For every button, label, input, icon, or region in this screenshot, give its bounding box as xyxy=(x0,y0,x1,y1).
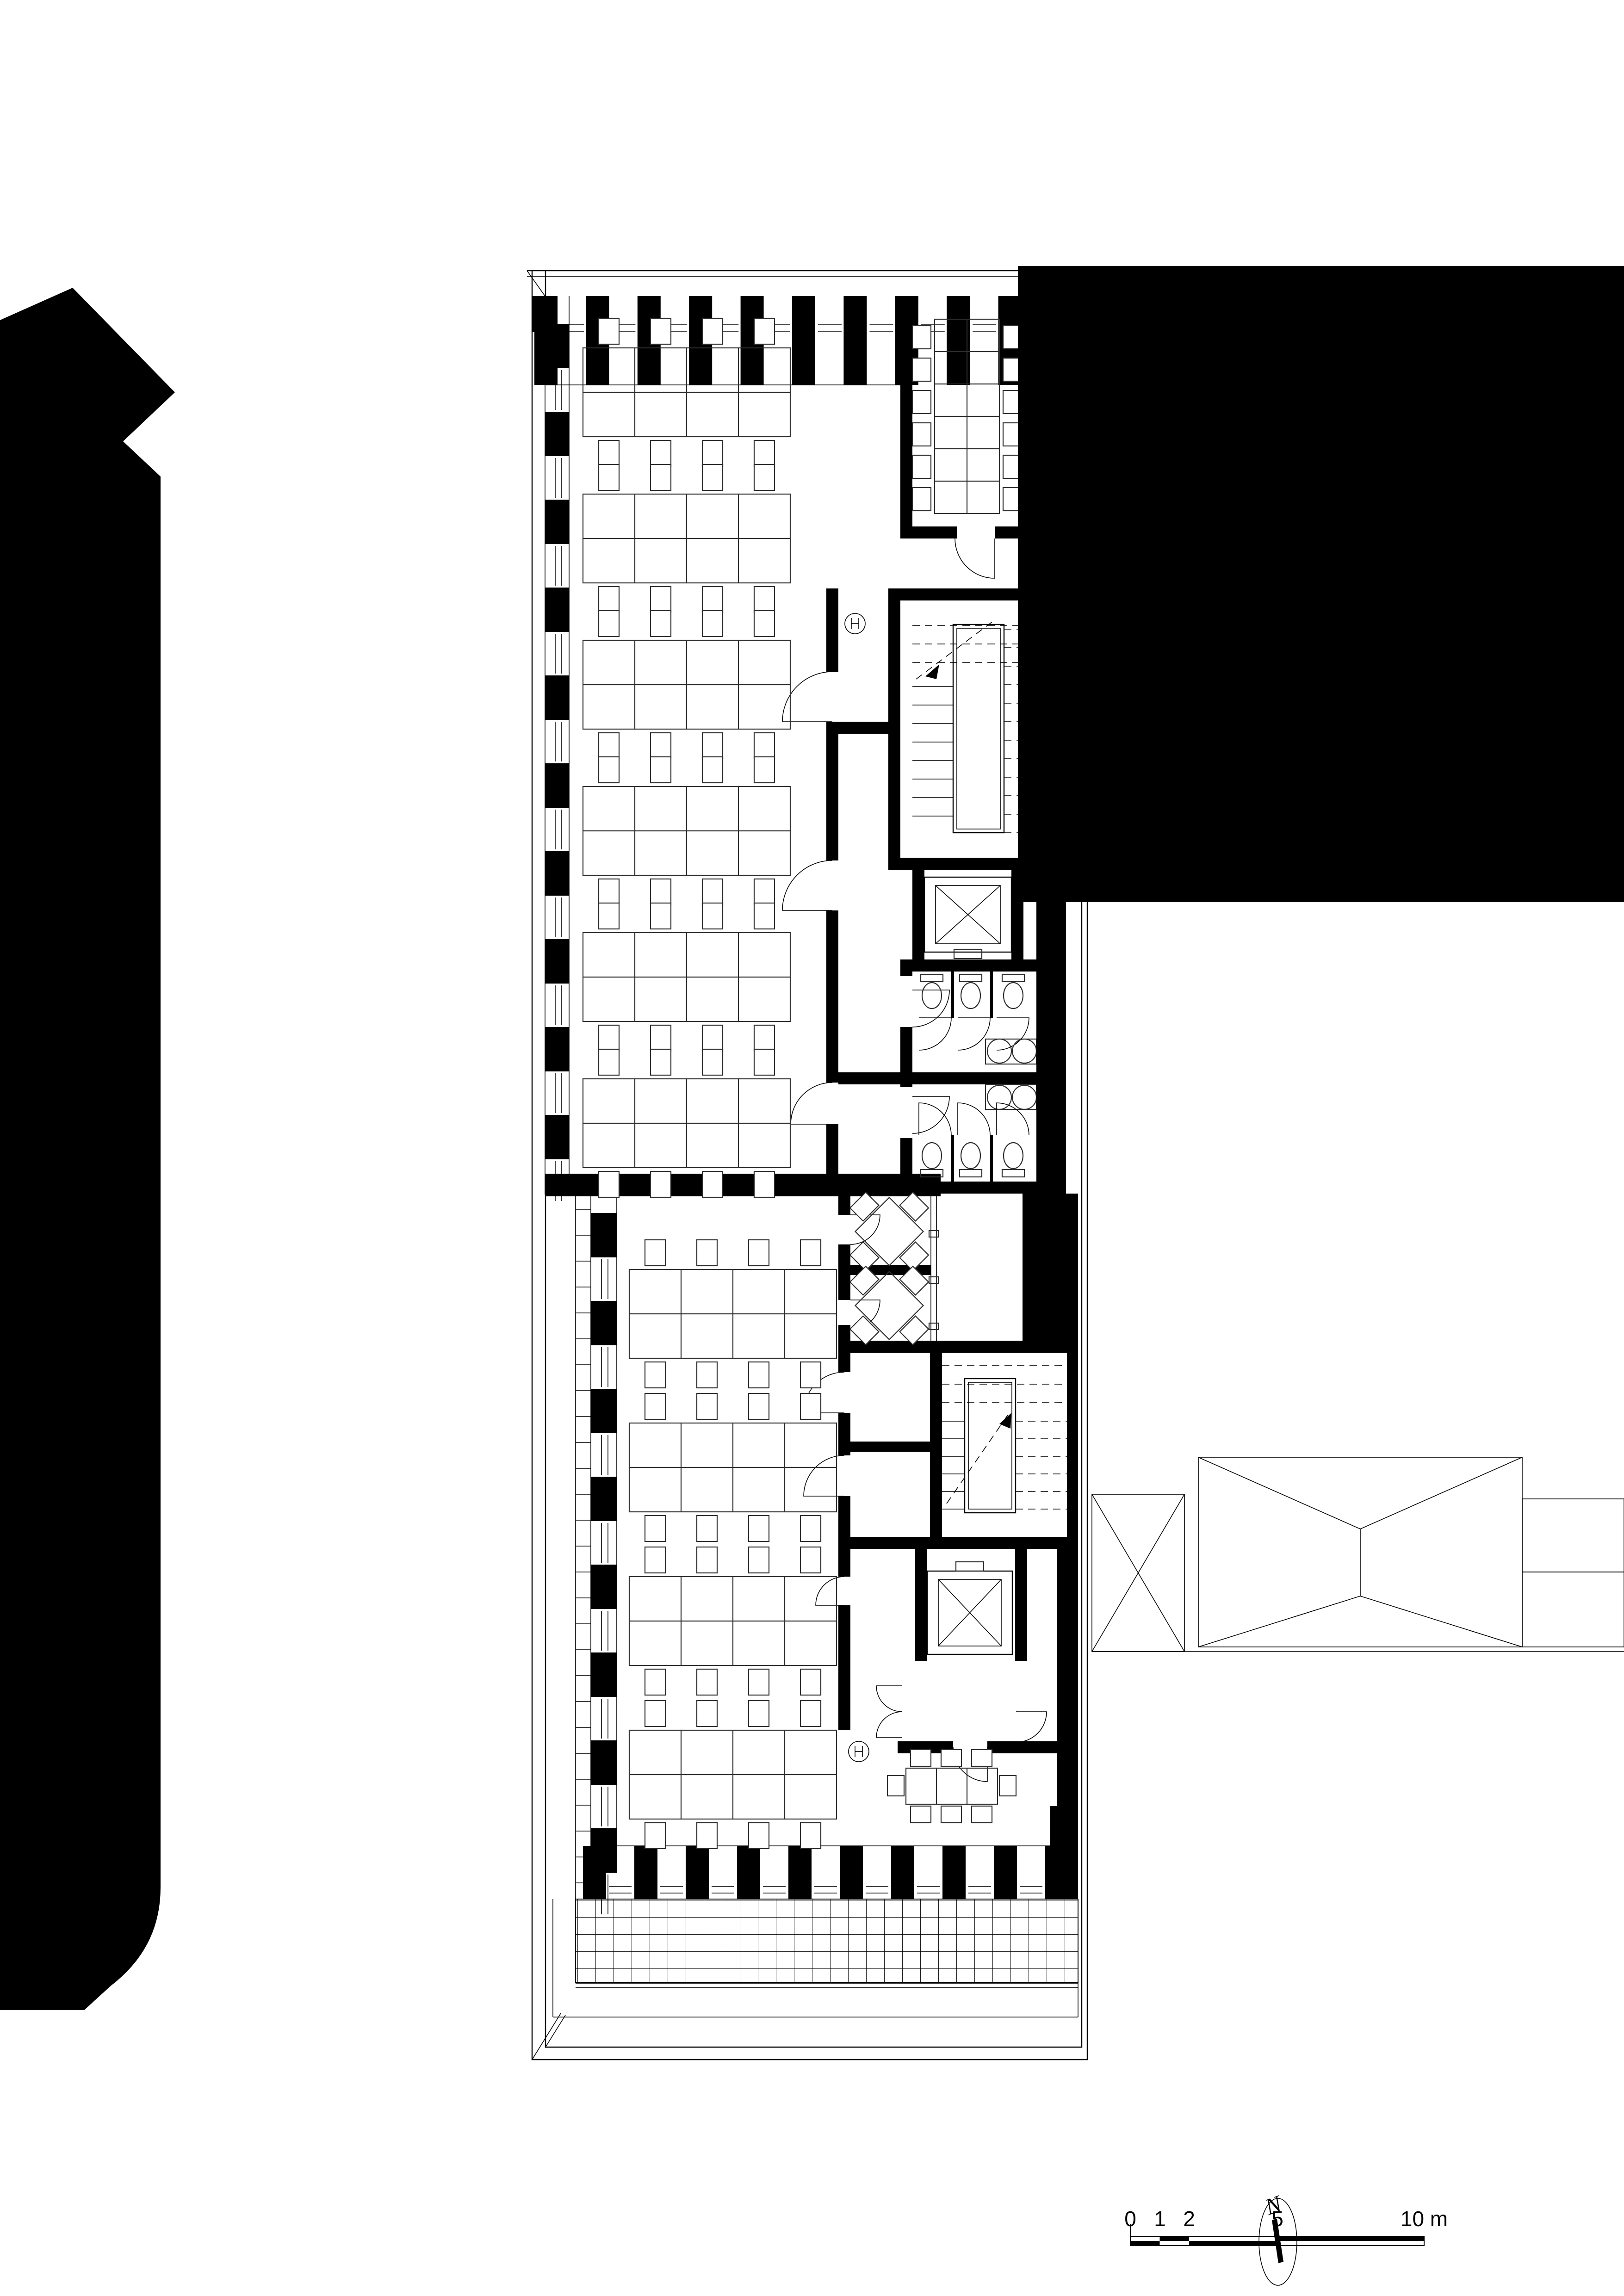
right-building-mass xyxy=(1018,266,1624,902)
floor-plan-drawing: 0 1 2 5 10 m N xyxy=(0,0,1624,2296)
wall xyxy=(826,588,838,672)
scale-segment xyxy=(1277,2236,1425,2241)
chair xyxy=(912,423,931,446)
scale-label-0: 0 xyxy=(1124,2207,1136,2231)
chair xyxy=(651,733,671,759)
scale-label-2: 2 xyxy=(1183,2207,1195,2231)
wall xyxy=(987,1741,1057,1753)
chair xyxy=(697,1240,717,1266)
chair xyxy=(651,903,671,929)
chair xyxy=(800,1393,821,1419)
chair xyxy=(651,879,671,905)
chair xyxy=(651,440,671,466)
chair xyxy=(599,464,619,490)
party-wall xyxy=(1036,902,1066,1194)
chair xyxy=(651,757,671,783)
chair xyxy=(702,1049,723,1075)
chair xyxy=(599,440,619,466)
chair xyxy=(702,903,723,929)
chair xyxy=(599,733,619,759)
chair xyxy=(599,1049,619,1075)
wall xyxy=(900,526,957,538)
chair xyxy=(800,1701,821,1727)
chair xyxy=(912,358,931,381)
floor-plan-sheet: 0 1 2 5 10 m N xyxy=(0,0,1624,2296)
chair xyxy=(749,1516,769,1541)
chair xyxy=(651,611,671,637)
chair xyxy=(754,733,775,759)
chair xyxy=(754,757,775,783)
door-gap xyxy=(900,1087,912,1138)
chair xyxy=(941,1750,961,1766)
wall xyxy=(838,1496,850,1537)
chair xyxy=(645,1701,665,1727)
pilaster xyxy=(891,1846,914,1899)
party-wall xyxy=(1050,1806,1078,1899)
pilaster xyxy=(545,412,569,456)
pilaster xyxy=(545,763,569,808)
wall xyxy=(838,722,900,734)
chair xyxy=(911,1806,931,1823)
chair xyxy=(800,1669,821,1695)
chair xyxy=(749,1547,769,1573)
chair xyxy=(754,464,775,490)
pilaster xyxy=(545,675,569,720)
chair xyxy=(599,318,619,344)
pilaster xyxy=(545,1115,569,1159)
left-building-mass xyxy=(0,288,175,2010)
chair xyxy=(651,464,671,490)
chair xyxy=(599,611,619,637)
chair xyxy=(800,1823,821,1849)
pilaster xyxy=(545,500,569,544)
wall xyxy=(995,526,1021,538)
pilaster xyxy=(994,1846,1017,1899)
chair xyxy=(697,1669,717,1695)
wall xyxy=(826,722,838,860)
chair xyxy=(911,1750,931,1766)
wall xyxy=(850,1442,930,1452)
chair xyxy=(754,1049,775,1075)
chair xyxy=(599,879,619,905)
pilaster xyxy=(947,296,970,385)
chair xyxy=(697,1393,717,1419)
scale-segment xyxy=(1160,2236,1190,2241)
party-wall xyxy=(1057,1537,1078,1806)
wall xyxy=(838,1537,1078,1549)
chair xyxy=(702,440,723,466)
stall-partition xyxy=(951,1135,954,1182)
wall xyxy=(838,1341,850,1372)
door-gap xyxy=(900,976,912,1027)
chair xyxy=(754,903,775,929)
terrace-tile-grid xyxy=(576,1899,1078,1982)
wall xyxy=(838,1196,850,1215)
pilaster xyxy=(591,1652,617,1697)
wall xyxy=(1015,1549,1027,1661)
chair xyxy=(702,611,723,637)
chair xyxy=(800,1240,821,1266)
pilaster xyxy=(843,296,867,385)
chair xyxy=(697,1362,717,1388)
chair xyxy=(599,1171,619,1197)
chair xyxy=(749,1362,769,1388)
chair xyxy=(754,587,775,613)
pilaster xyxy=(792,296,815,385)
party-wall xyxy=(1067,1353,1078,1537)
chair xyxy=(749,1701,769,1727)
chair xyxy=(702,879,723,905)
chair xyxy=(912,488,931,511)
chair xyxy=(651,1049,671,1075)
wall xyxy=(826,910,838,1083)
chair xyxy=(651,1025,671,1051)
chair xyxy=(800,1516,821,1541)
scale-label-1: 1 xyxy=(1154,2207,1166,2231)
pilaster xyxy=(583,1846,606,1899)
chair xyxy=(645,1547,665,1573)
chair xyxy=(651,318,671,344)
chair xyxy=(651,587,671,613)
pilaster xyxy=(591,1389,617,1433)
corner-pier xyxy=(532,296,545,332)
pilaster xyxy=(591,1565,617,1609)
chair xyxy=(941,1806,961,1823)
wall xyxy=(838,1072,900,1084)
chair xyxy=(599,587,619,613)
chair xyxy=(702,464,723,490)
chair xyxy=(754,440,775,466)
chair xyxy=(749,1823,769,1849)
pilaster xyxy=(545,324,569,368)
chair xyxy=(972,1750,992,1766)
chair xyxy=(697,1547,717,1573)
stall-partition xyxy=(951,972,954,1018)
pilaster xyxy=(591,1477,617,1521)
pilaster xyxy=(788,1846,812,1899)
chair xyxy=(999,1776,1016,1796)
wall xyxy=(900,1072,1048,1084)
chair xyxy=(702,587,723,613)
wall xyxy=(930,1353,942,1537)
chair xyxy=(754,879,775,905)
chair xyxy=(599,757,619,783)
chair xyxy=(651,1171,671,1197)
wall xyxy=(912,870,924,959)
chair xyxy=(697,1516,717,1541)
wall xyxy=(838,1549,850,1577)
chair xyxy=(749,1240,769,1266)
chair xyxy=(645,1240,665,1266)
pilaster xyxy=(545,939,569,984)
chair xyxy=(912,390,931,414)
chair xyxy=(702,1171,723,1197)
chair xyxy=(800,1547,821,1573)
neighbor-building-left xyxy=(0,288,175,2010)
scale-label-10m: 10 m xyxy=(1401,2207,1448,2231)
chair xyxy=(645,1516,665,1541)
scale-segment xyxy=(1189,2241,1277,2246)
chair xyxy=(887,1776,904,1796)
chair xyxy=(800,1362,821,1388)
pilaster xyxy=(686,1846,709,1899)
pilaster xyxy=(545,851,569,896)
pilaster xyxy=(545,588,569,632)
pilaster xyxy=(591,1301,617,1345)
wall xyxy=(838,1413,850,1455)
chair xyxy=(702,733,723,759)
stall-partition xyxy=(990,972,993,1018)
chair xyxy=(599,1025,619,1051)
scale-segment xyxy=(1130,2241,1160,2246)
pilaster xyxy=(840,1846,863,1899)
chair xyxy=(645,1362,665,1388)
chair xyxy=(912,326,931,349)
wall xyxy=(838,1605,850,1730)
pilaster xyxy=(591,1740,617,1785)
wall xyxy=(915,1549,927,1661)
chair xyxy=(754,611,775,637)
chair xyxy=(972,1806,992,1823)
chair xyxy=(749,1669,769,1695)
pilaster xyxy=(591,1213,617,1257)
chair xyxy=(702,757,723,783)
pilaster xyxy=(634,1846,657,1899)
chair xyxy=(702,318,723,344)
stall-partition xyxy=(990,1135,993,1182)
chair xyxy=(912,455,931,478)
chair xyxy=(599,903,619,929)
wall xyxy=(838,1325,850,1341)
chair xyxy=(645,1823,665,1849)
chair xyxy=(754,1171,775,1197)
chair xyxy=(702,1025,723,1051)
chair xyxy=(645,1669,665,1695)
pilaster xyxy=(545,1027,569,1071)
chair xyxy=(645,1393,665,1419)
party-wall xyxy=(1023,1194,1078,1353)
wall xyxy=(900,959,1048,972)
chair xyxy=(749,1393,769,1419)
chair xyxy=(697,1701,717,1727)
pilaster xyxy=(737,1846,760,1899)
pilaster xyxy=(942,1846,966,1899)
chair xyxy=(697,1823,717,1849)
wall xyxy=(900,296,912,538)
chair xyxy=(754,318,775,344)
chair xyxy=(754,1025,775,1051)
